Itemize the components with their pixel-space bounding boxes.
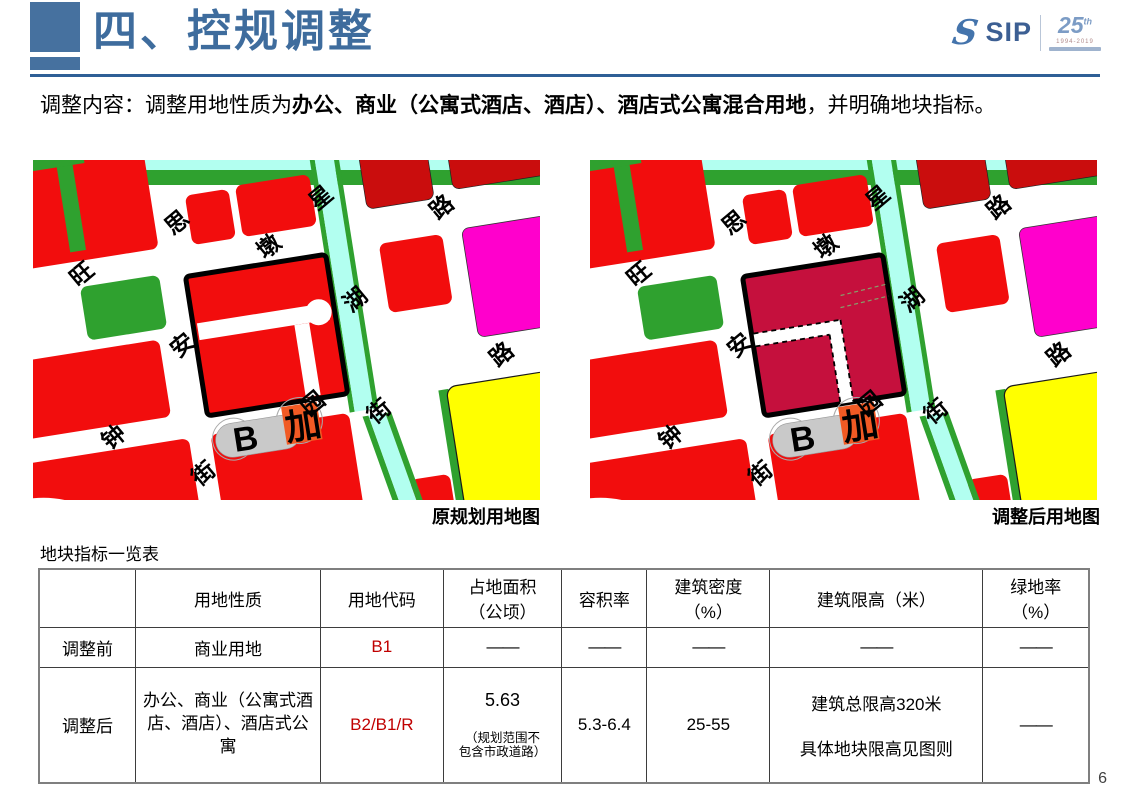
street-label: 路 xyxy=(1041,336,1076,371)
caption-adjusted-map: 调整后用地图 xyxy=(590,503,1100,529)
after-green-ratio: —— xyxy=(983,667,1089,783)
header-height-limit: 建筑限高（米） xyxy=(770,569,983,627)
anniversary-small-text-bar xyxy=(1049,47,1101,51)
anniversary-years: 1994-2019 xyxy=(1056,39,1094,45)
title-divider xyxy=(30,74,1100,77)
page-number: 6 xyxy=(1098,770,1107,788)
row-label-after: 调整后 xyxy=(39,667,136,783)
before-land-use: 商业用地 xyxy=(136,627,321,667)
table-title: 地块指标一览表 xyxy=(40,540,159,565)
green-space-block xyxy=(80,275,167,341)
intro-bold-land-use: 办公、商业（公寓式酒店、酒店）、酒店式公寓混合用地 xyxy=(292,94,807,117)
city-block xyxy=(436,160,540,190)
after-height-limit: 建筑总限高320米 具体地块限高见图则 xyxy=(770,667,983,783)
magenta-block xyxy=(1018,213,1097,338)
sip-logo-text: SIP xyxy=(985,17,1032,48)
city-block xyxy=(379,234,453,313)
table-header-row: 用地性质 用地代码 占地面积 （公顷） 容积率 建筑密度 （%） 建筑限高（米）… xyxy=(39,569,1089,627)
after-land-use: 办公、商业（公寓式酒店、酒店）、酒店式公寓 xyxy=(136,667,321,783)
header-land-use: 用地性质 xyxy=(136,569,321,627)
anniversary-25: 25th xyxy=(1058,14,1092,37)
table-row-before: 调整前 商业用地 B1 —— —— —— —— —— xyxy=(39,627,1089,667)
map-adjusted: B加星思路墩旺湖安路园街钟街 xyxy=(590,160,1097,500)
row-label-before: 调整前 xyxy=(39,627,136,667)
city-block xyxy=(33,160,159,278)
header-green-ratio: 绿地率 （%） xyxy=(983,569,1089,627)
header-land-code: 用地代码 xyxy=(320,569,443,627)
adjustment-description: 调整内容：调整用地性质为办公、商业（公寓式酒店、酒店）、酒店式公寓混合用地，并明… xyxy=(40,90,1096,122)
logo-divider xyxy=(1040,15,1041,51)
yellow-block xyxy=(446,361,540,500)
title-decoration-square xyxy=(30,2,80,52)
before-green-ratio: —— xyxy=(983,627,1089,667)
after-area-note: （规划范围不 包含市政道路） xyxy=(448,731,558,760)
street-label: 路 xyxy=(484,336,519,371)
yellow-block xyxy=(1003,361,1097,500)
anniversary-logo: 25th 1994-2019 xyxy=(1049,14,1101,51)
before-height-limit: —— xyxy=(770,627,983,667)
page-title: 四、控规调整 xyxy=(93,6,375,59)
title-decoration-bar xyxy=(30,57,80,70)
city-block xyxy=(993,160,1097,190)
before-land-code: B1 xyxy=(320,627,443,667)
magenta-block xyxy=(461,213,540,338)
after-land-code: B2/B1/R xyxy=(320,667,443,783)
table-row-after: 调整后 办公、商业（公寓式酒店、酒店）、酒店式公寓 B2/B1/R 5.63 （… xyxy=(39,667,1089,783)
map-tilted-group: B加星思路墩旺湖安路园街钟街 xyxy=(590,160,1097,500)
header-area: 占地面积 （公顷） xyxy=(443,569,562,627)
header-far: 容积率 xyxy=(562,569,647,627)
caption-original-map: 原规划用地图 xyxy=(33,503,540,529)
after-far: 5.3-6.4 xyxy=(562,667,647,783)
intro-suffix: ，并明确地块指标。 xyxy=(807,94,996,117)
city-block xyxy=(742,189,793,245)
plot-indicator-table: 用地性质 用地代码 占地面积 （公顷） 容积率 建筑密度 （%） 建筑限高（米）… xyxy=(38,568,1090,784)
map-original: B加星思路墩旺湖安路园街钟街 xyxy=(33,160,540,500)
sip-swirl-icon: S xyxy=(950,16,981,50)
before-far: —— xyxy=(562,627,647,667)
sip-logo: S SIP 25th 1994-2019 xyxy=(953,14,1101,51)
map-tilted-group: B加星思路墩旺湖安路园街钟街 xyxy=(33,160,540,500)
green-space-block xyxy=(637,275,724,341)
after-area-value: 5.63 xyxy=(448,690,558,712)
header-density: 建筑密度 （%） xyxy=(647,569,770,627)
after-density: 25-55 xyxy=(647,667,770,783)
after-area: 5.63 （规划范围不 包含市政道路） xyxy=(443,667,562,783)
city-block xyxy=(936,234,1010,313)
before-density: —— xyxy=(647,627,770,667)
before-area: —— xyxy=(443,627,562,667)
intro-prefix: 调整内容：调整用地性质为 xyxy=(40,94,292,117)
city-block xyxy=(185,189,236,245)
city-block xyxy=(590,160,716,278)
header-blank xyxy=(39,569,136,627)
slide: 四、控规调整 S SIP 25th 1994-2019 调整内容：调整用地性质为… xyxy=(0,0,1123,794)
